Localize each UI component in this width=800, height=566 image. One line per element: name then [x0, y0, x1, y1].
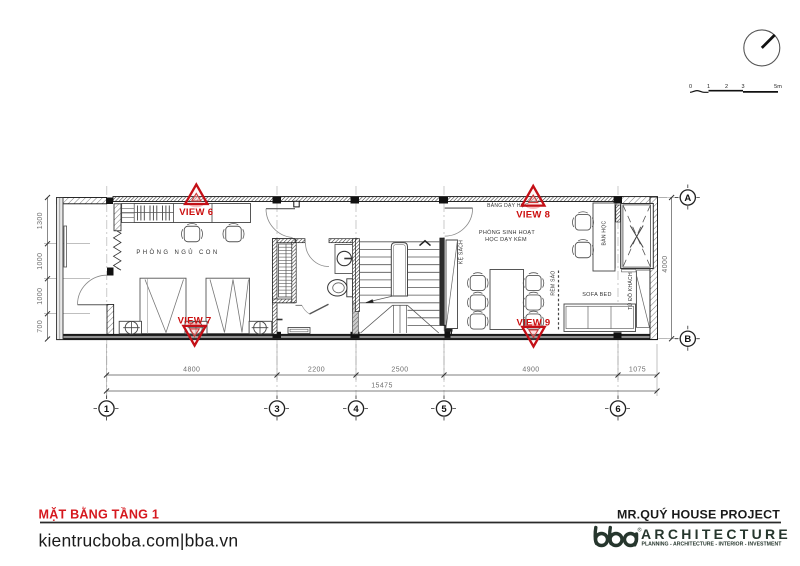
svg-text:4900: 4900	[522, 367, 539, 374]
svg-text:700: 700	[37, 320, 44, 333]
svg-text:HỌC DẠY KÈM: HỌC DẠY KÈM	[485, 236, 527, 243]
svg-text:4000: 4000	[662, 255, 669, 272]
svg-text:2: 2	[725, 84, 728, 90]
svg-text:2200: 2200	[308, 367, 325, 374]
svg-text:4800: 4800	[183, 367, 200, 374]
svg-text:TỦ ĐỒ KHÁCH: TỦ ĐỒ KHÁCH	[627, 272, 634, 310]
svg-text:VIEW 8: VIEW 8	[516, 209, 550, 220]
svg-text:15475: 15475	[371, 383, 392, 390]
svg-text:5: 5	[441, 404, 447, 415]
svg-text:3: 3	[274, 404, 279, 415]
svg-text:2500: 2500	[391, 367, 408, 374]
svg-text:PLANNING - ARCHITECTURE - INTE: PLANNING - ARCHITECTURE - INTERIOR - INV…	[642, 542, 783, 548]
svg-text:1075: 1075	[629, 367, 646, 374]
svg-text:A: A	[684, 193, 691, 204]
svg-text:MẶT BẰNG TẦNG 1: MẶT BẰNG TẦNG 1	[39, 507, 160, 522]
svg-text:BÀN HỌC: BÀN HỌC	[601, 220, 608, 245]
svg-text:ARCHITECTURE: ARCHITECTURE	[641, 526, 791, 542]
svg-text:1: 1	[707, 84, 710, 90]
svg-text:1: 1	[104, 404, 110, 415]
svg-text:1000: 1000	[37, 288, 44, 305]
svg-text:RÈM SÁO: RÈM SÁO	[550, 270, 557, 295]
svg-text:SOFA BED: SOFA BED	[582, 292, 612, 298]
svg-text:KỆ SÁCH: KỆ SÁCH	[457, 240, 465, 264]
svg-text:6: 6	[615, 404, 620, 415]
svg-text:PHÒNG SINH HOẠT: PHÒNG SINH HOẠT	[479, 229, 535, 236]
svg-text:VIEW 6: VIEW 6	[179, 207, 213, 218]
svg-text:MR.QUÝ HOUSE PROJECT: MR.QUÝ HOUSE PROJECT	[617, 507, 780, 522]
svg-text:4: 4	[353, 404, 359, 415]
svg-text:5m: 5m	[774, 84, 782, 90]
svg-text:1300: 1300	[37, 212, 44, 229]
svg-text:PHÒNG NGỦ CON: PHÒNG NGỦ CON	[136, 249, 219, 256]
svg-text:3: 3	[741, 84, 744, 90]
svg-text:VIEW 9: VIEW 9	[516, 317, 550, 328]
svg-text:VIEW 7: VIEW 7	[178, 315, 212, 326]
svg-text:B: B	[684, 334, 691, 345]
svg-text:kientrucboba.com|bba.vn: kientrucboba.com|bba.vn	[39, 531, 239, 551]
svg-text:1000: 1000	[37, 253, 44, 270]
svg-text:0: 0	[689, 84, 692, 90]
